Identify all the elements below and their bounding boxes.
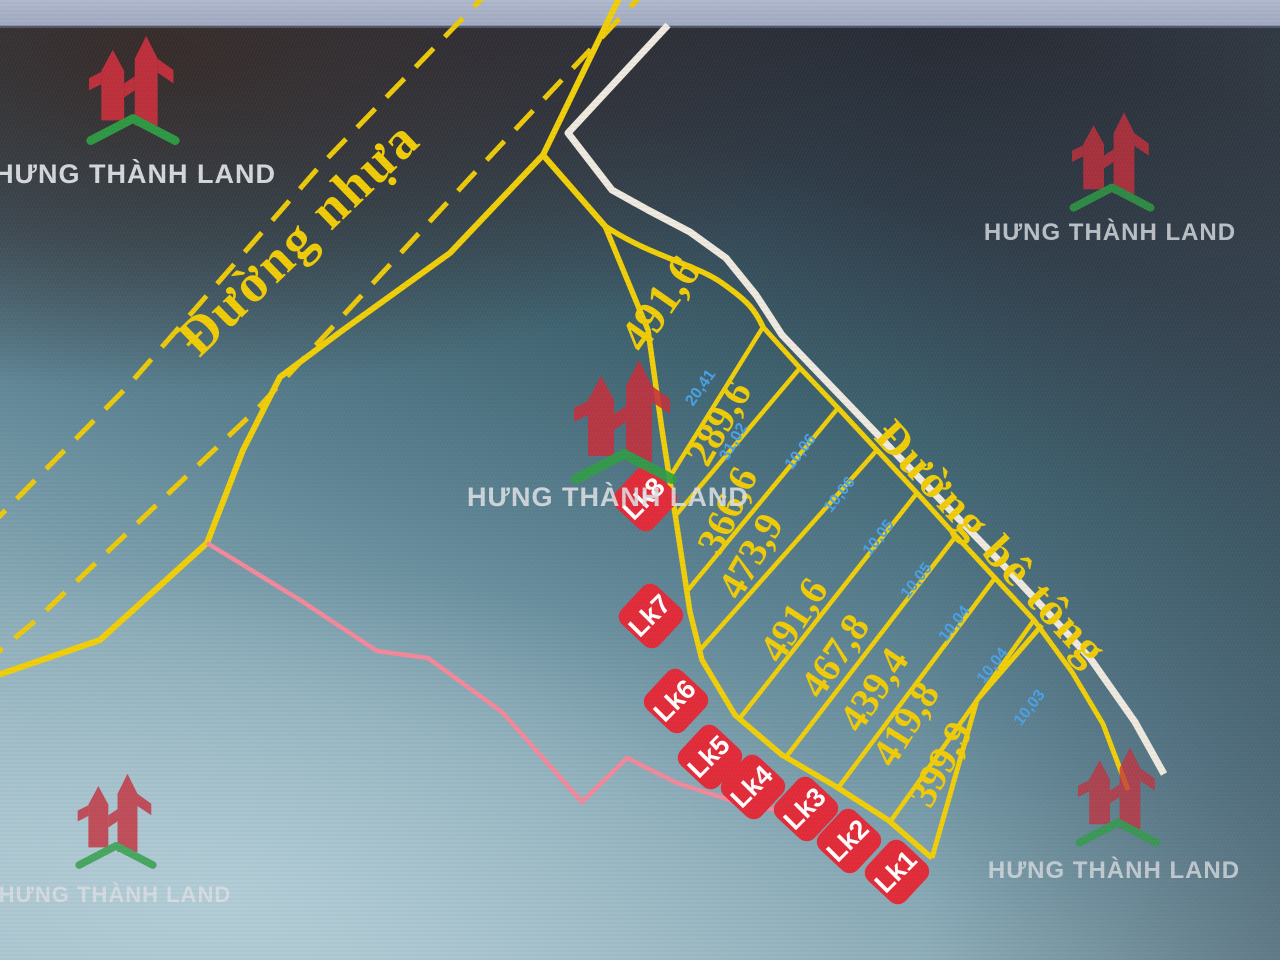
top-screen-strip — [0, 0, 1280, 26]
brand-text-center: HƯNG THÀNH LAND — [467, 481, 749, 512]
map-canvas: Đường nhựa Đường bê tông 491,6 289,6 366… — [0, 0, 1280, 960]
top-strip-edge — [0, 25, 1280, 28]
brand-text-top-left: HƯNG THÀNH LAND — [0, 158, 276, 189]
brand-text-bottom-right: HƯNG THÀNH LAND — [988, 856, 1240, 884]
brand-text-bottom-left: HƯNG THÀNH LAND — [0, 882, 231, 907]
land-plot-map-photo: Đường nhựa Đường bê tông 491,6 289,6 366… — [0, 0, 1280, 960]
brand-text-top-right: HƯNG THÀNH LAND — [984, 218, 1236, 246]
